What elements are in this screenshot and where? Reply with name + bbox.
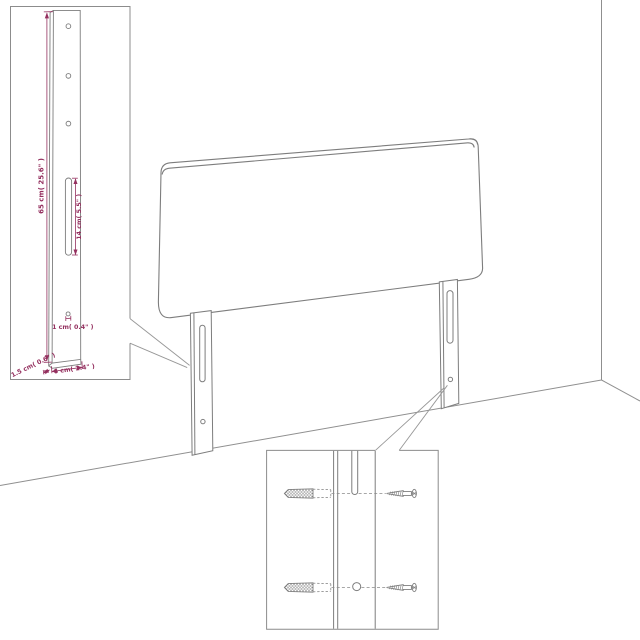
headboard <box>158 139 482 318</box>
leg-height-label: 65 cm( 25.6" ) <box>38 158 46 214</box>
leg-bolt-hole-1 <box>66 24 71 29</box>
headboard-assembly-diagram: 65 cm( 25.6" ) 14 cm( 5.5" ) 1 cm( 0.4" … <box>0 0 640 640</box>
mounting-detail-inset-border <box>267 450 439 629</box>
leg-detail-callout-line-lower <box>130 343 187 367</box>
leg-hole-label: 1 cm( 0.4" ) <box>52 324 94 331</box>
wall-plug-body <box>284 583 313 592</box>
product-diagram-canvas: 65 cm( 25.6" ) 14 cm( 5.5" ) 1 cm( 0.4" … <box>0 0 640 640</box>
leg-slot-label: 14 cm( 5.5" ) <box>76 194 83 240</box>
mounting-callout-line-left <box>375 388 444 450</box>
headboard-panel <box>158 139 482 318</box>
wall-plug-body <box>284 489 313 498</box>
leg-front-face <box>52 10 81 363</box>
mounting-detail-inset <box>267 450 439 629</box>
callout-lines <box>130 319 447 451</box>
leg-bolt-hole-3 <box>66 121 71 126</box>
floor-line-right <box>602 380 640 401</box>
leg-bolt-hole-2 <box>66 74 71 79</box>
leg-detail-callout-line-upper <box>130 319 190 366</box>
mounting-callout-line-right <box>399 385 447 450</box>
leg-detail-inset: 65 cm( 25.6" ) 14 cm( 5.5" ) 1 cm( 0.4" … <box>10 7 130 380</box>
leg-detail-drawing <box>49 10 81 368</box>
left-leg <box>190 311 212 456</box>
